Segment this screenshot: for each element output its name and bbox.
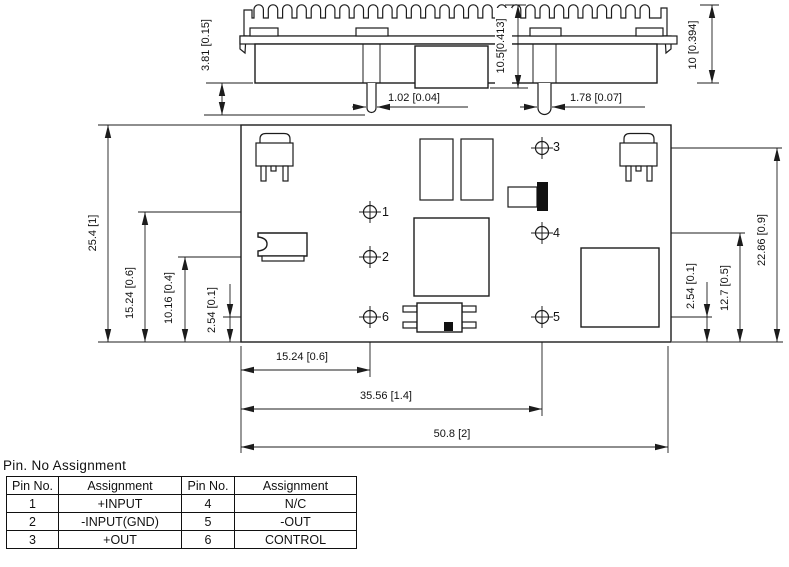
dim-text: 12.7 [0.5] — [719, 265, 731, 311]
assignment-cell: -OUT — [235, 513, 357, 531]
flange-pad — [530, 28, 561, 36]
assignment-cell: N/C — [235, 495, 357, 513]
pin-3-label: 3 — [553, 140, 560, 154]
dim-left-pin1-row: 15.24 [0.6] — [124, 212, 145, 342]
dim-text: 10.16 [0.4] — [163, 272, 175, 324]
table-row: 1 +INPUT 4 N/C — [7, 495, 357, 513]
heatsink-fins — [244, 5, 667, 36]
header-pin-no-left: Pin No. — [7, 477, 59, 495]
transformer-bulge — [415, 46, 488, 88]
pin-no-cell: 5 — [182, 513, 235, 531]
dim-standoff-text: 3.81 [0.15] — [200, 19, 212, 71]
flange-pad — [356, 28, 388, 36]
dim-left-pin2-row: 10.16 [0.4] — [163, 257, 185, 342]
dim-bottom-col1: 15.24 [0.6] — [241, 351, 370, 370]
pin-no-cell: 4 — [182, 495, 235, 513]
assignment-cell: +INPUT — [59, 495, 182, 513]
transformer-center — [414, 218, 489, 296]
flange-pad — [636, 28, 663, 36]
assignment-cell: -INPUT(GND) — [59, 513, 182, 531]
dim-pin-large-text: 1.78 [0.07] — [570, 92, 622, 104]
dim-right-pin3-row: 22.86 [0.9] — [756, 148, 777, 342]
pin-table-title: Pin. No Assignment — [3, 458, 357, 473]
dim-text: 35.56 [1.4] — [360, 390, 412, 402]
header-pin-no-right: Pin No. — [182, 477, 235, 495]
pin-4-label: 4 — [553, 226, 560, 240]
pin-2-label: 2 — [382, 250, 389, 264]
dim-left-pin6-row: 2.54 [0.1] — [206, 284, 230, 342]
dim-text: 2.54 [0.1] — [206, 287, 218, 333]
pin-profile-large — [538, 83, 551, 115]
pin-5-label: 5 — [553, 310, 560, 324]
drawing-sheet: 3.81 [0.15] 10.5[0.413] 10 [0.394] 1.02 … — [0, 0, 789, 567]
dim-text: 2.54 [0.1] — [685, 263, 697, 309]
dim-right-pin4-row: 12.7 [0.5] — [719, 233, 740, 342]
dim-text: 22.86 [0.9] — [756, 214, 768, 266]
assignment-cell: +OUT — [59, 531, 182, 549]
dimension-drawing: 3.81 [0.15] 10.5[0.413] 10 [0.394] 1.02 … — [0, 0, 789, 456]
dim-bottom-col2: 35.56 [1.4] — [241, 390, 542, 409]
header-assignment-right: Assignment — [235, 477, 357, 495]
pin-no-cell: 3 — [7, 531, 59, 549]
dim-text: 15.24 [0.6] — [124, 267, 136, 319]
capacitor-1 — [420, 139, 453, 200]
dim-total-height-text: 10.5[0.413] — [495, 18, 507, 73]
header-assignment-left: Assignment — [59, 477, 182, 495]
table-row: 2 -INPUT(GND) 5 -OUT — [7, 513, 357, 531]
capacitor-2 — [461, 139, 493, 200]
pin1-dot — [444, 322, 453, 331]
mounting-flange — [240, 36, 677, 44]
pin-profile-small — [367, 83, 376, 113]
table-row: 3 +OUT 6 CONTROL — [7, 531, 357, 549]
pin-6-label: 6 — [382, 310, 389, 324]
transformer-right — [581, 248, 659, 327]
assignment-cell: CONTROL — [235, 531, 357, 549]
dim-text: 15.24 [0.6] — [276, 351, 328, 363]
dim-right-pin5-row: 2.54 [0.1] — [685, 263, 707, 342]
pin-assignment-table: Pin No. Assignment Pin No. Assignment 1 … — [6, 476, 357, 549]
pin-no-cell: 6 — [182, 531, 235, 549]
dim-case-height: 10 [0.394] — [687, 5, 719, 83]
pin-no-cell: 2 — [7, 513, 59, 531]
flange-pad — [250, 28, 278, 36]
dim-pin-small-text: 1.02 [0.04] — [388, 92, 440, 104]
side-view: 3.81 [0.15] 10.5[0.413] 10 [0.394] 1.02 … — [200, 5, 719, 115]
dim-text: 50.8 [2] — [434, 428, 471, 440]
dim-bottom-full-width: 50.8 [2] — [241, 428, 668, 447]
bottom-view: 1 2 6 3 4 5 25.4 [1] 15.24 [0.6] 10.16 [… — [87, 125, 783, 453]
pin-assignment-section: Pin. No Assignment Pin No. Assignment Pi… — [3, 458, 357, 549]
dim-case-height-text: 10 [0.394] — [687, 21, 699, 70]
dim-left-full-height: 25.4 [1] — [87, 125, 108, 342]
table-header-row: Pin No. Assignment Pin No. Assignment — [7, 477, 357, 495]
pin-no-cell: 1 — [7, 495, 59, 513]
dim-text: 25.4 [1] — [87, 215, 99, 252]
pin-1-label: 1 — [382, 205, 389, 219]
